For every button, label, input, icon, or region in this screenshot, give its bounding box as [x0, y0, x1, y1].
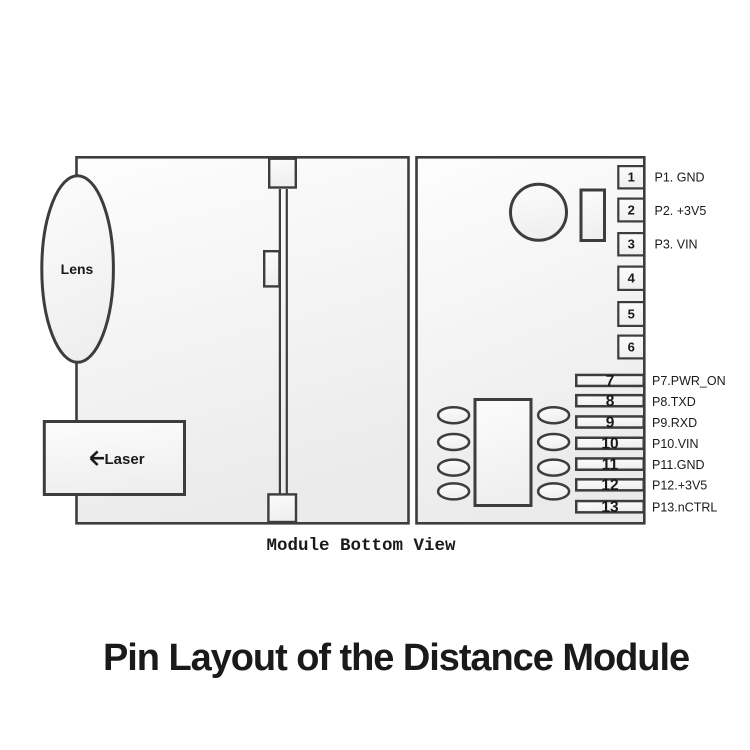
svg-text:5: 5 [628, 307, 635, 322]
svg-text:6: 6 [628, 340, 635, 355]
svg-text:12: 12 [601, 477, 618, 494]
svg-text:P10.VIN: P10.VIN [652, 437, 699, 451]
svg-text:Module Bottom View: Module Bottom View [266, 536, 456, 556]
svg-text:P13.nCTRL: P13.nCTRL [652, 500, 717, 514]
svg-text:P12.+3V5: P12.+3V5 [652, 479, 707, 493]
svg-text:1: 1 [628, 170, 635, 185]
svg-text:7: 7 [606, 373, 615, 390]
svg-text:9: 9 [606, 414, 615, 431]
svg-text:11: 11 [602, 456, 619, 473]
svg-text:P1. GND: P1. GND [655, 171, 705, 185]
svg-text:4: 4 [628, 271, 636, 286]
svg-text:3: 3 [628, 237, 635, 252]
svg-text:2: 2 [628, 203, 635, 218]
svg-text:Lens: Lens [61, 261, 94, 277]
svg-text:P8.TXD: P8.TXD [652, 395, 696, 409]
svg-text:Pin Layout of the Distance Mod: Pin Layout of the Distance Module [103, 637, 689, 679]
svg-text:P2. +3V5: P2. +3V5 [655, 204, 707, 218]
svg-text:P7.PWR_ON: P7.PWR_ON [652, 374, 726, 388]
svg-text:P9.RXD: P9.RXD [652, 416, 697, 430]
svg-text:P11.GND: P11.GND [652, 458, 705, 472]
svg-text:Laser: Laser [105, 451, 145, 468]
svg-text:P3. VIN: P3. VIN [655, 238, 698, 252]
svg-text:8: 8 [606, 393, 615, 410]
svg-text:13: 13 [601, 499, 619, 516]
svg-text:10: 10 [601, 436, 618, 453]
